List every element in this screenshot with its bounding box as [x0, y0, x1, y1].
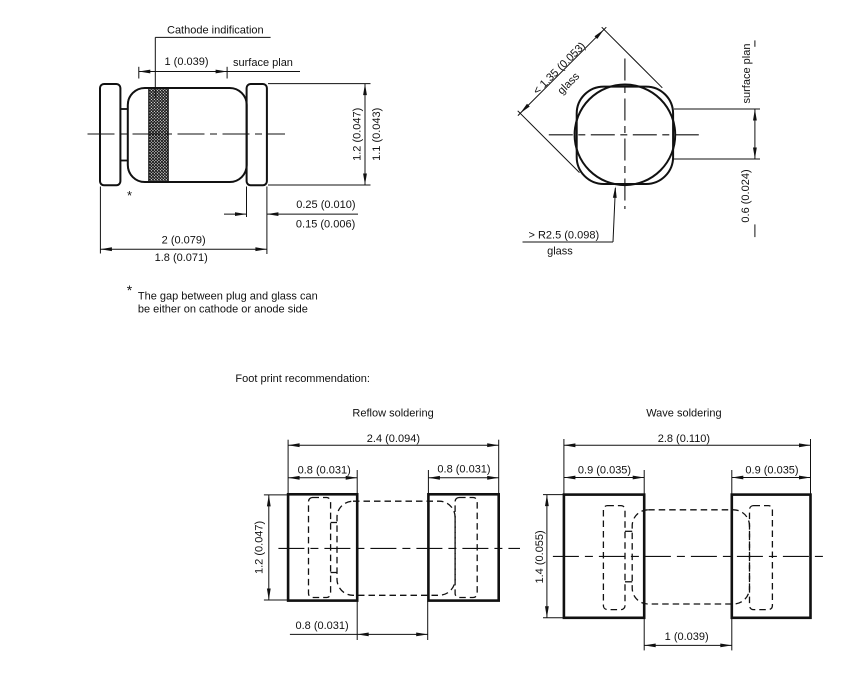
svg-text:1 (0.039): 1 (0.039) — [164, 56, 208, 68]
svg-text:> R2.5 (0.098): > R2.5 (0.098) — [529, 230, 600, 242]
svg-text:1.2 (0.047): 1.2 (0.047) — [254, 521, 266, 574]
svg-text:*: * — [127, 282, 133, 298]
svg-text:be either on cathode or anode: be either on cathode or anode side — [138, 304, 308, 316]
svg-text:glass: glass — [547, 246, 573, 258]
svg-text:1 (0.039): 1 (0.039) — [665, 631, 709, 643]
svg-text:1.8 (0.071): 1.8 (0.071) — [155, 252, 208, 264]
svg-text:0.25 (0.010): 0.25 (0.010) — [296, 199, 355, 211]
svg-text:Reflow soldering: Reflow soldering — [352, 408, 433, 420]
svg-text:0.8 (0.031): 0.8 (0.031) — [298, 464, 351, 476]
svg-text:2.4 (0.094): 2.4 (0.094) — [367, 433, 420, 445]
svg-text:surface plan: surface plan — [233, 57, 293, 69]
svg-text:Foot print recommendation:: Foot print recommendation: — [235, 373, 370, 385]
svg-text:*: * — [127, 188, 132, 203]
svg-text:1.2 (0.047): 1.2 (0.047) — [351, 108, 363, 161]
svg-text:Cathode indification: Cathode indification — [167, 25, 264, 37]
svg-text:0.8 (0.031): 0.8 (0.031) — [296, 620, 349, 632]
svg-text:1.1 (0.043): 1.1 (0.043) — [371, 108, 383, 161]
svg-text:0.8 (0.031): 0.8 (0.031) — [437, 463, 490, 475]
svg-text:surface plan: surface plan — [741, 44, 753, 104]
svg-text:2.8 (0.110): 2.8 (0.110) — [658, 433, 710, 445]
svg-text:0.9 (0.035): 0.9 (0.035) — [745, 464, 798, 476]
svg-text:1.4 (0.055): 1.4 (0.055) — [534, 530, 546, 583]
svg-text:The gap between plug and glass: The gap between plug and glass can — [138, 290, 318, 302]
svg-text:0.15 (0.006): 0.15 (0.006) — [296, 219, 355, 231]
svg-text:2 (0.079): 2 (0.079) — [162, 234, 206, 246]
svg-text:Wave soldering: Wave soldering — [646, 408, 721, 420]
svg-text:0.6 (0.024): 0.6 (0.024) — [740, 169, 752, 222]
svg-text:0.9 (0.035): 0.9 (0.035) — [578, 464, 631, 476]
